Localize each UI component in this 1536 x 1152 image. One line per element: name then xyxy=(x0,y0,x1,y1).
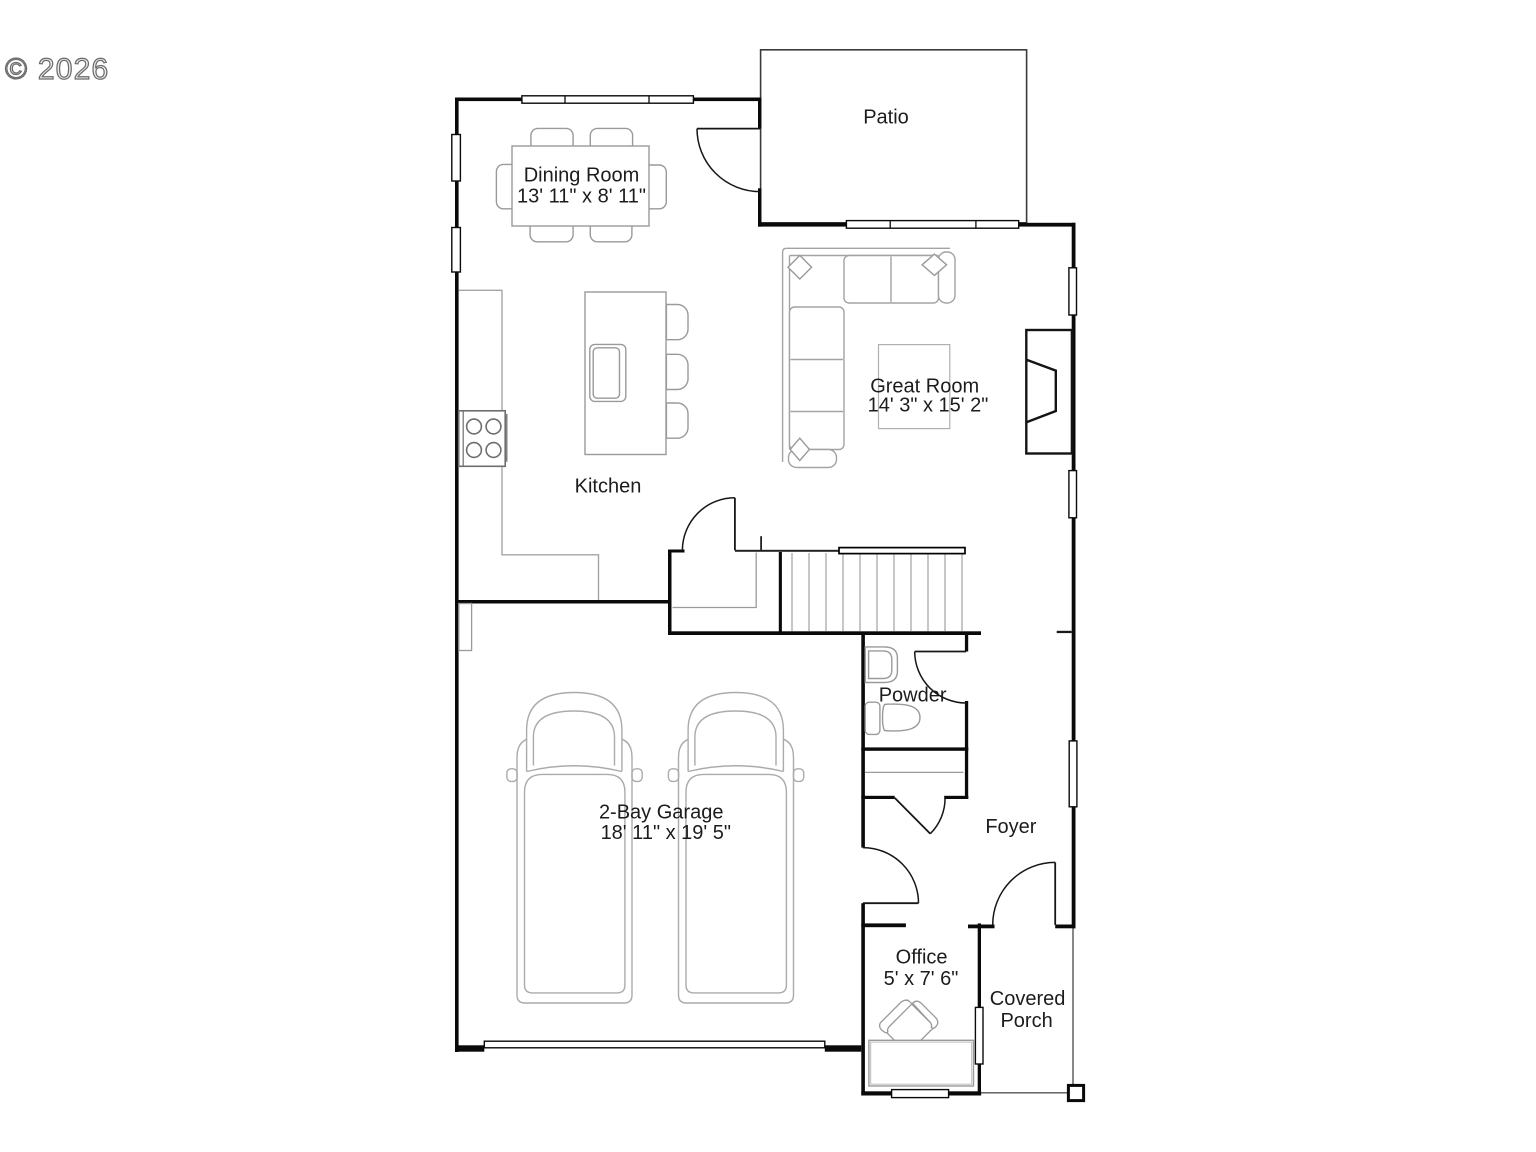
svg-text:Kitchen: Kitchen xyxy=(575,476,642,498)
svg-text:2-Bay Garage: 2-Bay Garage xyxy=(599,802,724,824)
svg-text:13' 11" x 8' 11": 13' 11" x 8' 11" xyxy=(517,185,646,207)
svg-text:Patio: Patio xyxy=(863,107,909,129)
svg-text:Powder: Powder xyxy=(879,684,947,706)
svg-text:18' 11" x 19' 5": 18' 11" x 19' 5" xyxy=(601,822,731,844)
svg-text:Foyer: Foyer xyxy=(985,816,1036,838)
svg-text:Covered: Covered xyxy=(990,988,1066,1010)
svg-text:Porch: Porch xyxy=(1000,1010,1052,1032)
svg-text:Dining Room: Dining Room xyxy=(524,165,640,187)
svg-text:© 2026: © 2026 xyxy=(5,53,109,86)
svg-text:14' 3" x 15' 2": 14' 3" x 15' 2" xyxy=(868,395,989,417)
svg-text:5' x 7' 6": 5' x 7' 6" xyxy=(884,968,959,990)
svg-text:Office: Office xyxy=(896,947,948,969)
